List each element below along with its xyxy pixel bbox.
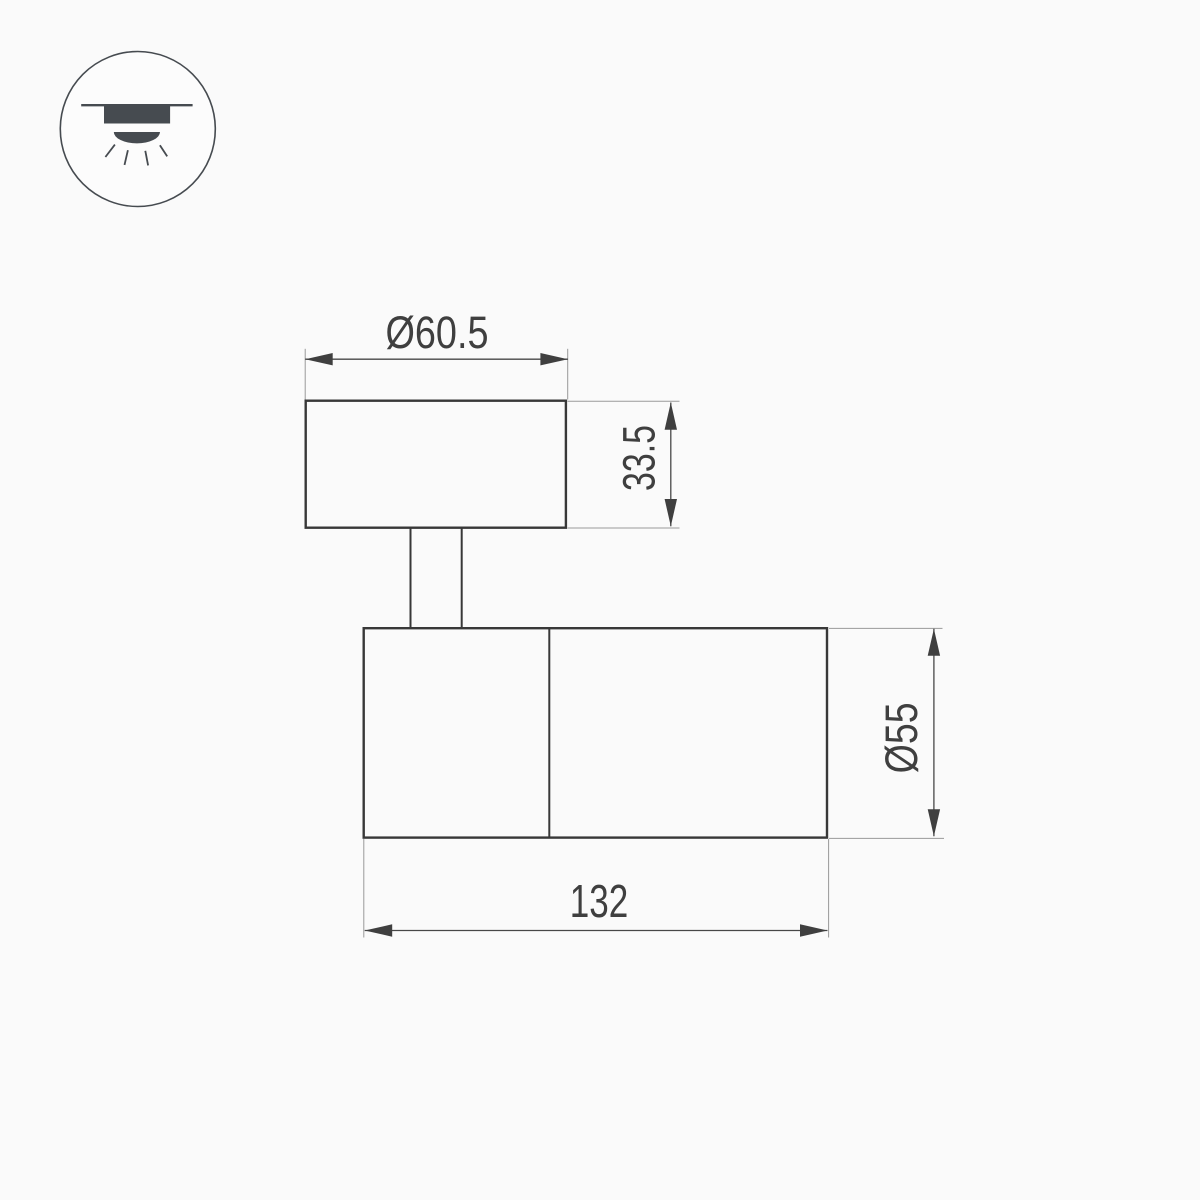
svg-text:132: 132 (570, 875, 629, 927)
svg-text:33.5: 33.5 (613, 425, 664, 491)
svg-text:Ø60.5: Ø60.5 (386, 307, 489, 358)
svg-text:Ø55: Ø55 (876, 702, 927, 773)
